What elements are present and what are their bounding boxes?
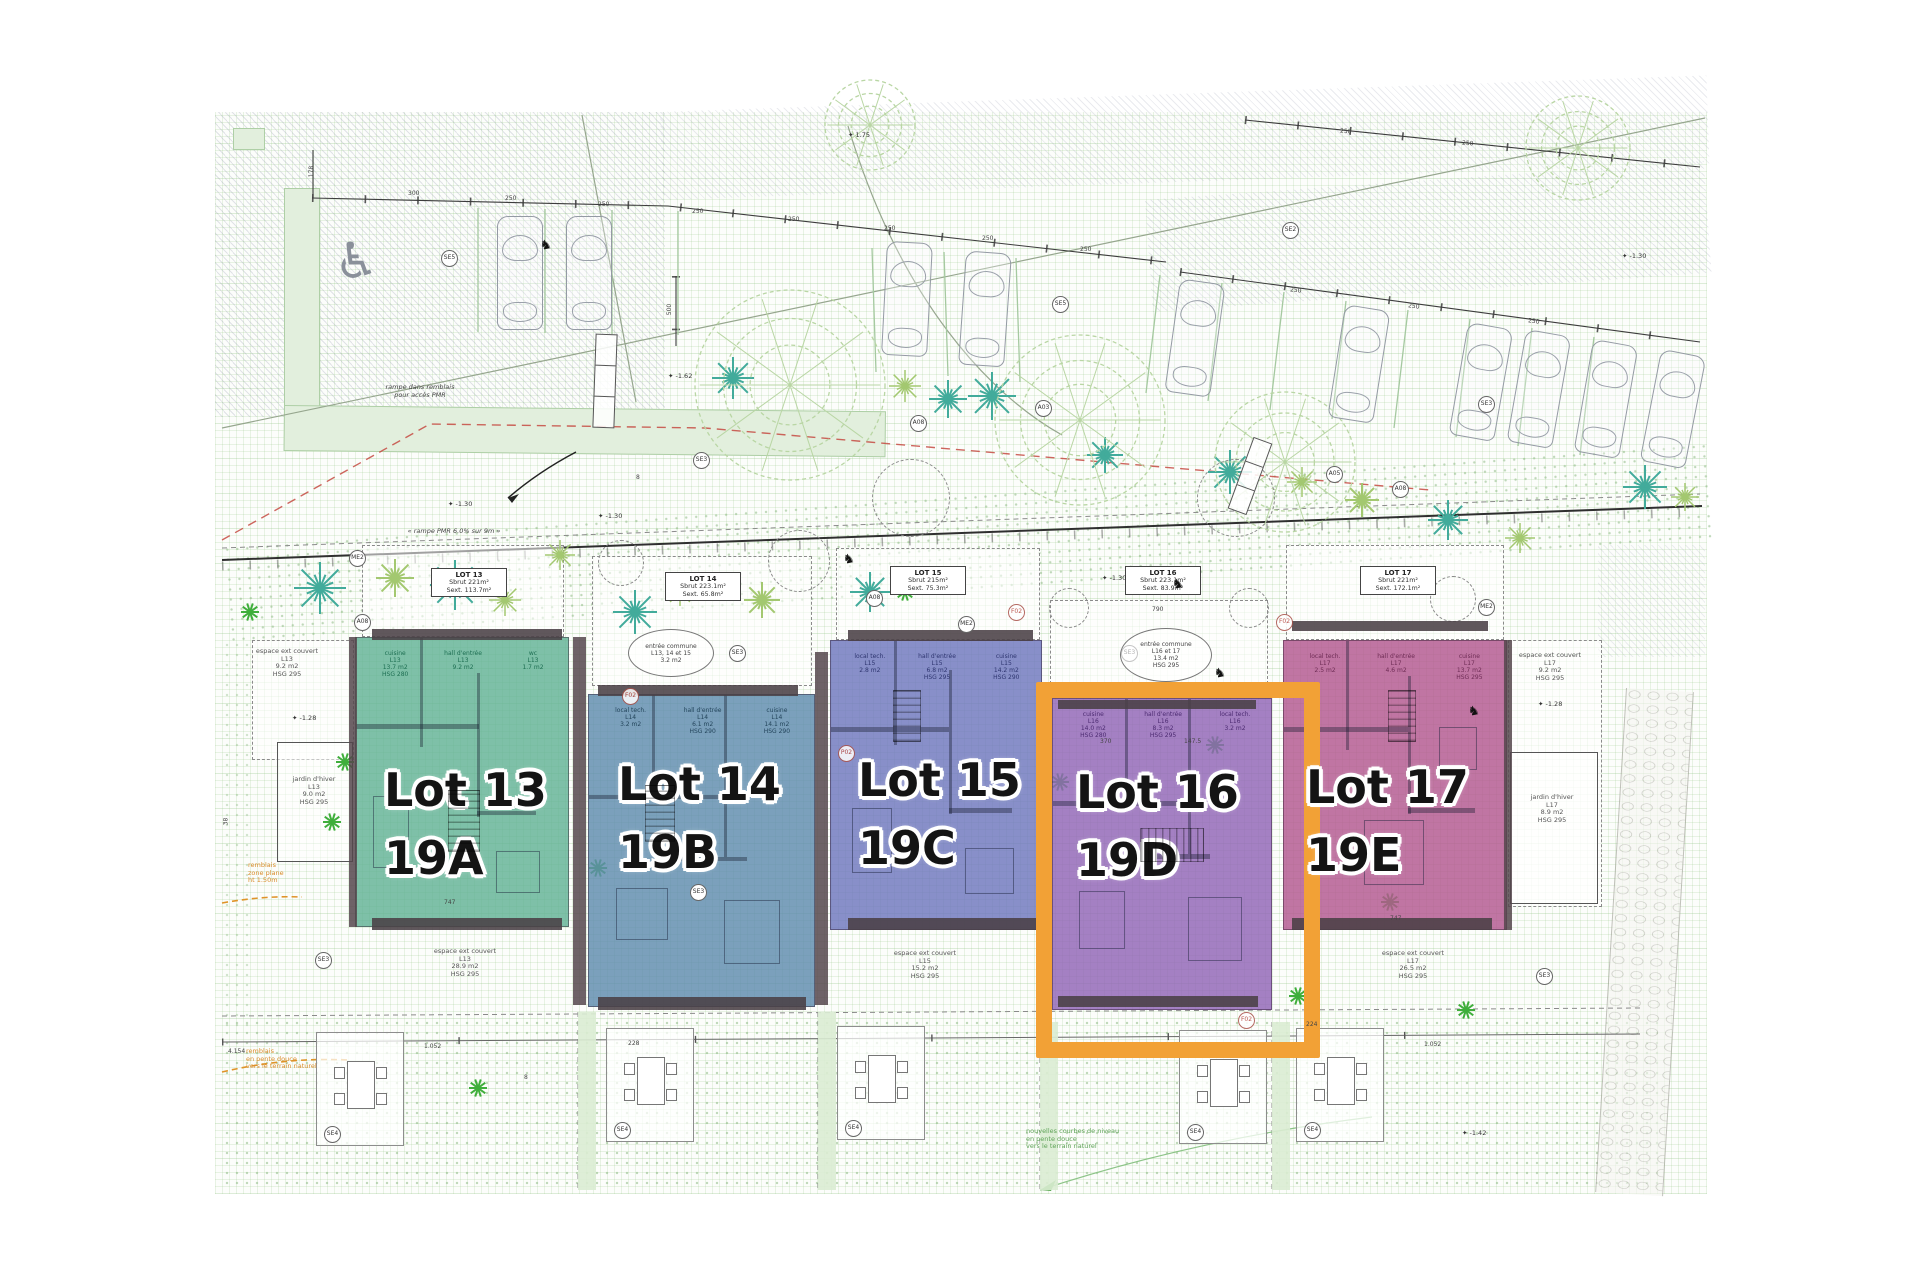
infobox-lot13: LOT 13Sbrut 221m²Sext. 113.7m² — [431, 568, 507, 597]
unit-number: 19B — [618, 825, 717, 879]
room-label: cuisine L14 14.1 m2 HSG 290 — [747, 707, 808, 735]
lot-14-label[interactable]: Lot 1419B — [618, 750, 781, 886]
court-lot16 — [1050, 600, 1268, 684]
lot-number: Lot 15 — [858, 753, 1021, 807]
lot-13-label[interactable]: Lot 1319A — [384, 756, 547, 892]
unit-number: 19A — [384, 831, 484, 885]
lot-number: Lot 13 — [384, 763, 547, 817]
party-wall-14-15 — [815, 652, 828, 1005]
room-label: local tech. L15 2.8 m2 — [842, 653, 899, 674]
wheelchair-icon: ♿ — [334, 232, 379, 290]
room-label: hall d'entrée L15 6.8 m2 HSG 295 — [909, 653, 966, 681]
wall — [349, 637, 357, 927]
lot-15-label[interactable]: Lot 1519C — [858, 746, 1021, 882]
wall-bar — [848, 918, 1038, 930]
wall-bar-lot13 — [372, 629, 562, 640]
wall-bar-lot14 — [598, 685, 798, 696]
room-label: wc L13 1.7 m2 — [504, 650, 561, 671]
room-label: cuisine L15 14.2 m2 HSG 290 — [978, 653, 1035, 681]
lot-number: Lot 17 — [1306, 760, 1469, 814]
unit-number: 19C — [858, 821, 956, 875]
unit-number: 19D — [1076, 833, 1178, 887]
infobox-lot16: LOT 16Sbrut 223.1m²Sext. 83.9m² — [1125, 566, 1201, 595]
room-label: hall d'entrée L14 6.1 m2 HSG 290 — [672, 707, 733, 735]
lot-17-label[interactable]: Lot 1719E — [1306, 753, 1469, 889]
party-wall-13-14 — [573, 637, 586, 1005]
site-plan-page: { "plan": {"type": "site-plan", "languag… — [0, 0, 1920, 1281]
winter-garden-lot13 — [277, 742, 353, 862]
room-label: local tech. L17 2.5 m2 — [1295, 653, 1355, 674]
winter-garden-lot17 — [1510, 752, 1598, 904]
infobox-lot14: LOT 14Sbrut 223.1m²Sext. 65.8m² — [665, 572, 741, 601]
wall-bar-lot17 — [1292, 621, 1488, 631]
lot-16-label[interactable]: Lot 1619D — [1076, 758, 1239, 894]
wall-bar — [598, 997, 806, 1010]
room-label: local tech. L14 3.2 m2 — [600, 707, 661, 728]
infobox-lot17: LOT 17Sbrut 221m²Sext. 172.1m² — [1360, 566, 1436, 595]
lot-number: Lot 16 — [1076, 765, 1239, 819]
wall-bar-lot15 — [848, 630, 1033, 641]
room-label: cuisine L13 13.7 m2 HSG 280 — [367, 650, 424, 678]
room-label: hall d'entrée L13 9.2 m2 — [434, 650, 491, 671]
lot-number: Lot 14 — [618, 757, 781, 811]
wall-bar — [1292, 918, 1492, 930]
wall — [1504, 640, 1512, 930]
room-label: cuisine L17 13.7 m2 HSG 295 — [1439, 653, 1499, 681]
wall-bar — [372, 918, 562, 930]
room-label: hall d'entrée L17 4.6 m2 — [1366, 653, 1426, 674]
unit-number: 19E — [1306, 828, 1401, 882]
infobox-lot15: LOT 15Sbrut 215m²Sext. 75.3m² — [890, 566, 966, 595]
